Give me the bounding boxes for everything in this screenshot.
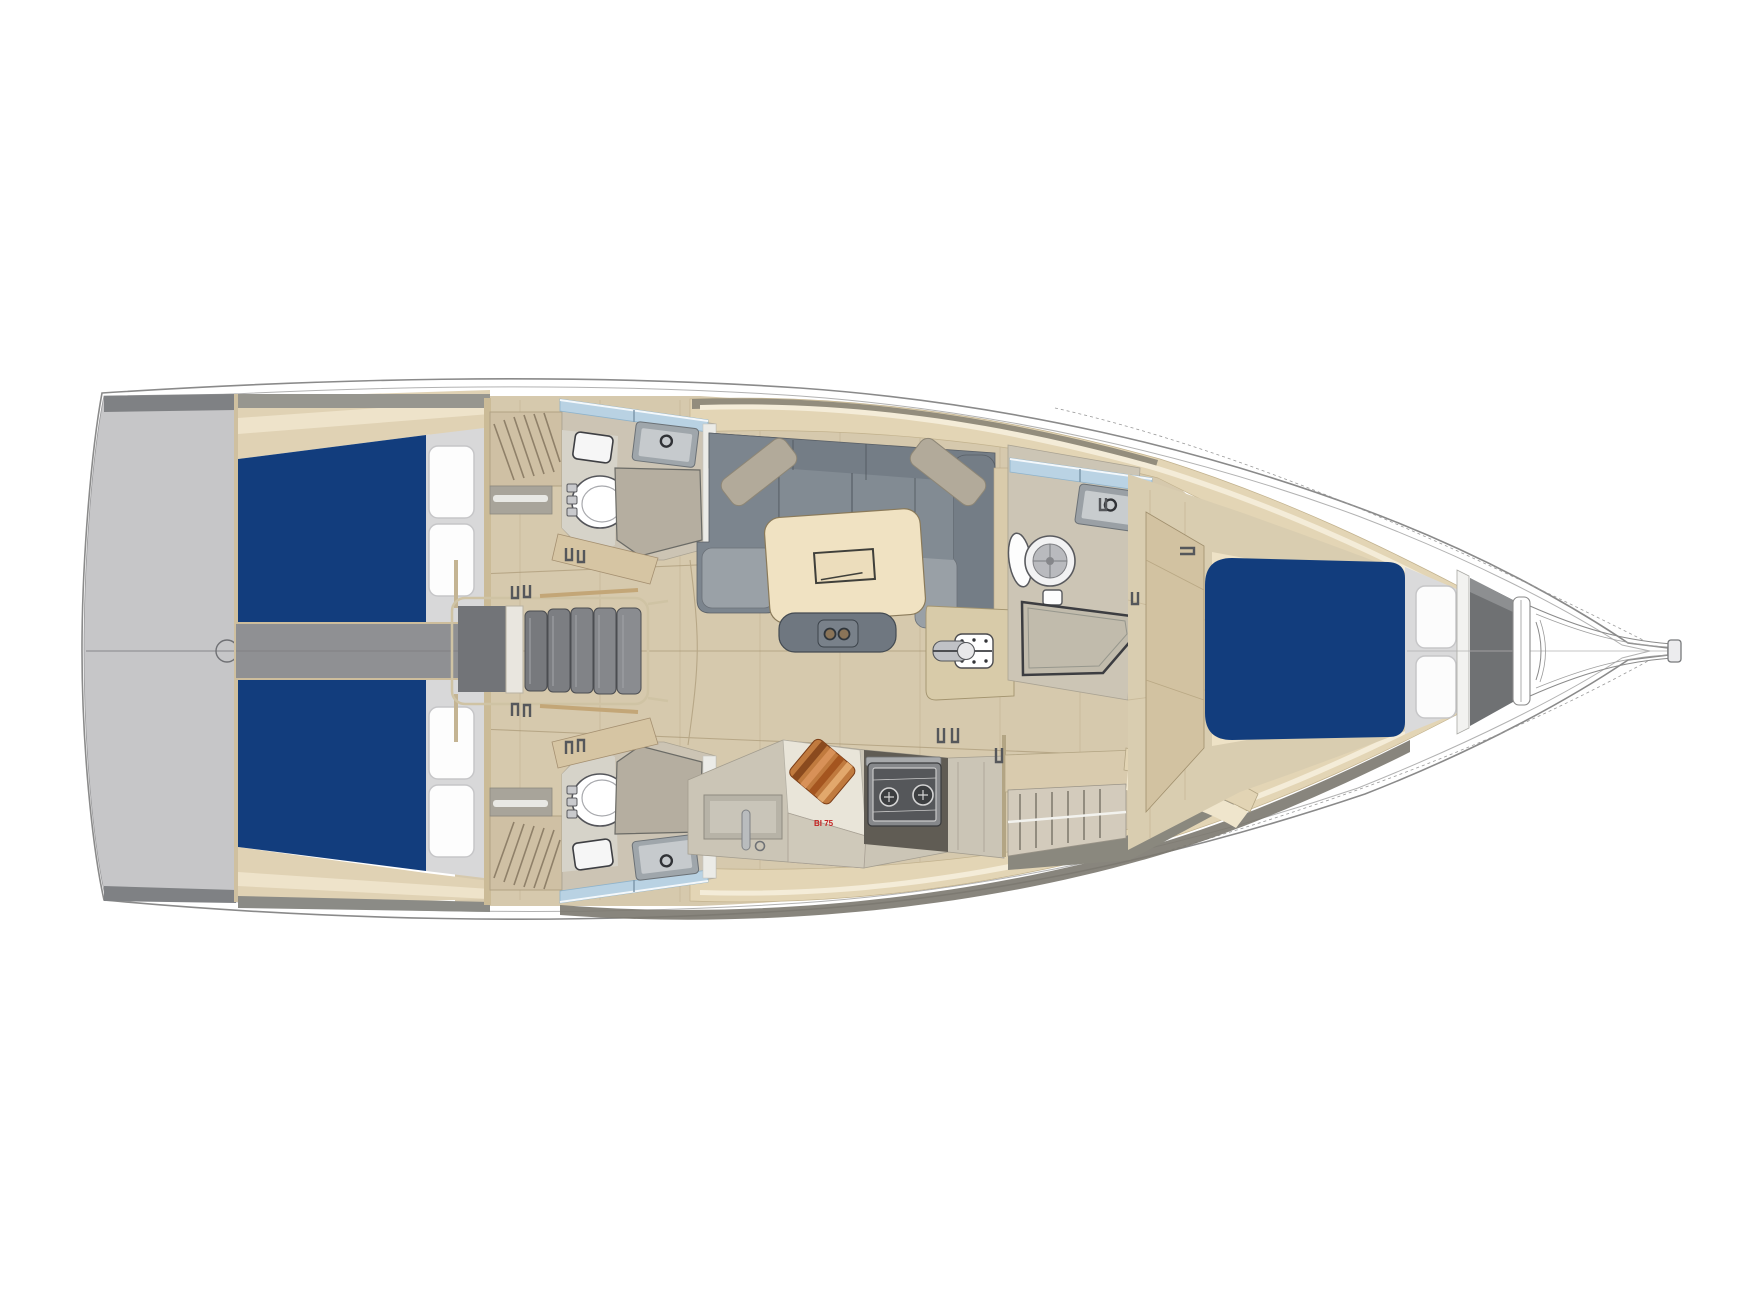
svg-text:BI 75: BI 75 xyxy=(814,819,834,828)
